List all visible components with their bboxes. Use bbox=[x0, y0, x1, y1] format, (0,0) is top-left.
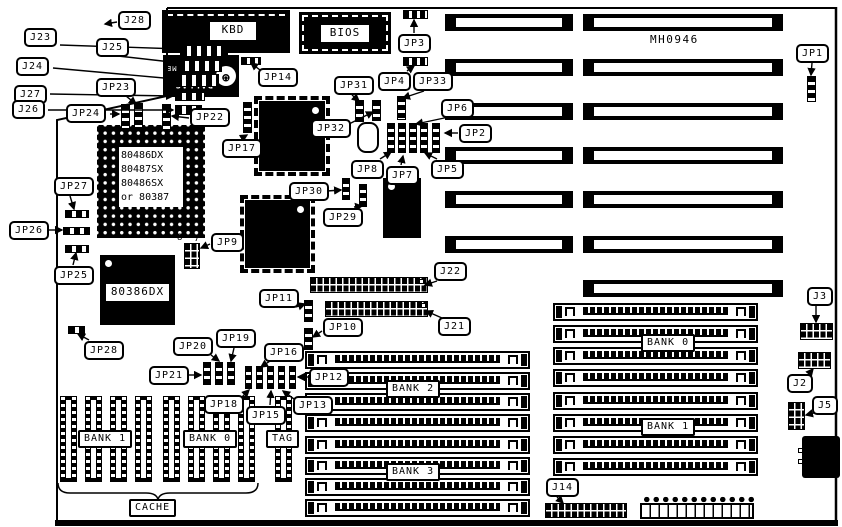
jumper-block bbox=[342, 178, 350, 200]
pin-connector bbox=[180, 45, 228, 57]
jumper-block bbox=[409, 123, 417, 153]
jumper-block bbox=[243, 102, 252, 133]
jumper-block bbox=[403, 10, 428, 19]
callout-jp19: JP19 bbox=[216, 329, 256, 348]
pin1-dot bbox=[297, 206, 304, 213]
pin-connector bbox=[65, 245, 89, 253]
leader-jp7 bbox=[401, 156, 403, 165]
pin1-dot bbox=[105, 260, 112, 267]
pin-connector bbox=[65, 210, 89, 218]
isa-slot-segment bbox=[583, 280, 783, 297]
callout-jp14: JP14 bbox=[258, 68, 298, 87]
cpu-socket-label: 80486DX80487SX80486SXor 80387 bbox=[119, 147, 183, 207]
jumper-block bbox=[278, 366, 285, 389]
cache-dip-socket bbox=[135, 396, 152, 482]
leader-jp17 bbox=[242, 135, 247, 138]
callout-j23: J23 bbox=[24, 28, 57, 47]
jumper-block bbox=[372, 100, 381, 121]
callout-j14: J14 bbox=[546, 478, 579, 497]
jumper-block bbox=[121, 104, 130, 129]
leader-j28 bbox=[105, 22, 117, 24]
isa-slot-16bit-segment bbox=[445, 59, 573, 76]
callout-jp23: JP23 bbox=[96, 78, 136, 97]
bank-label-bank-0: BANK 0 bbox=[183, 430, 237, 448]
callout-jp3: JP3 bbox=[398, 34, 431, 53]
simm-socket bbox=[305, 436, 530, 454]
cpu-socket-label-line: 80487SX bbox=[121, 163, 181, 177]
chip-label-bios: BIOS bbox=[321, 25, 369, 42]
pin1-dot bbox=[312, 107, 319, 114]
callout-jp17: JP17 bbox=[222, 139, 262, 158]
jumper-block bbox=[134, 103, 143, 128]
leader-jp33 bbox=[403, 91, 424, 98]
jumper-block bbox=[355, 100, 364, 122]
callout-jp13: JP13 bbox=[293, 396, 333, 415]
simm-socket bbox=[553, 392, 758, 410]
jumper-block bbox=[215, 362, 223, 385]
leader-jp30 bbox=[327, 190, 341, 191]
leader-jp4 bbox=[407, 66, 414, 71]
power-connector-body bbox=[640, 503, 754, 519]
leader-jp28 bbox=[78, 334, 89, 340]
pin-connector bbox=[175, 92, 205, 101]
callout-jp6: JP6 bbox=[441, 99, 474, 118]
bank-label-bank-0: BANK 0 bbox=[641, 334, 695, 352]
isa-slot-segment bbox=[583, 14, 783, 31]
bank-label-cache: CACHE bbox=[129, 499, 176, 517]
callout-jp25: JP25 bbox=[54, 266, 94, 285]
callout-jp20: JP20 bbox=[173, 337, 213, 356]
bank-label-bank-1: BANK 1 bbox=[641, 418, 695, 436]
callout-jp33: JP33 bbox=[413, 72, 453, 91]
isa-slot-segment bbox=[583, 236, 783, 253]
simm-socket bbox=[553, 458, 758, 476]
pin-number-text: 8 bbox=[177, 233, 182, 243]
simm-socket bbox=[553, 303, 758, 321]
callout-jp22: JP22 bbox=[190, 108, 230, 127]
chip-label-kbd: KBD bbox=[210, 22, 256, 40]
header-pin1-mark bbox=[419, 279, 424, 284]
simm-socket bbox=[553, 369, 758, 387]
jumper-block bbox=[304, 300, 313, 322]
isa-slot-segment bbox=[583, 147, 783, 164]
cache-brace bbox=[58, 483, 258, 500]
jumper-block bbox=[245, 366, 252, 389]
jumper-block bbox=[289, 366, 296, 389]
jumper-block bbox=[256, 366, 263, 389]
leader-jp19 bbox=[231, 348, 234, 361]
chip-label-80386dx: 80386DX bbox=[106, 284, 169, 301]
callout-jp32: JP32 bbox=[311, 119, 351, 138]
din-pin bbox=[798, 448, 803, 453]
pin-header bbox=[184, 243, 200, 269]
callout-jp24: JP24 bbox=[66, 104, 106, 123]
bank-label-tag: TAG bbox=[266, 430, 299, 448]
callout-j21: J21 bbox=[438, 317, 471, 336]
pin-connector bbox=[63, 227, 90, 235]
jumper-block bbox=[304, 328, 313, 350]
keyboard-din-connector bbox=[802, 436, 840, 478]
callout-jp16: JP16 bbox=[264, 343, 304, 362]
leader-jp1 bbox=[811, 63, 812, 75]
leader-jp9 bbox=[201, 244, 210, 248]
jumper-block bbox=[203, 362, 211, 385]
callout-jp11: JP11 bbox=[259, 289, 299, 308]
jumper-block bbox=[359, 184, 367, 207]
crystal-oscillator bbox=[357, 122, 379, 153]
leader-jp22 bbox=[172, 116, 189, 118]
jumper-block bbox=[162, 104, 171, 130]
jumper-block bbox=[807, 76, 816, 102]
cpu-socket-label-line: or 80387 bbox=[121, 191, 181, 205]
jumper-block bbox=[420, 123, 428, 153]
callout-jp28: JP28 bbox=[84, 341, 124, 360]
callout-jp30: JP30 bbox=[289, 182, 329, 201]
callout-jp10: JP10 bbox=[323, 318, 363, 337]
callout-jp31: JP31 bbox=[334, 76, 374, 95]
motherboard-jumper-diagram: MH0946 J28J23J25J24J27J26JP23JP24JP22JP1… bbox=[0, 0, 842, 527]
leader-jp15 bbox=[270, 391, 271, 405]
callout-jp7: JP7 bbox=[386, 166, 419, 185]
pin-header bbox=[788, 402, 805, 430]
leader-jp5 bbox=[425, 153, 437, 159]
power-connector-pins bbox=[640, 494, 754, 503]
callout-jp8: JP8 bbox=[351, 160, 384, 179]
callout-jp21: JP21 bbox=[149, 366, 189, 385]
din-pin bbox=[798, 459, 803, 464]
callout-j5: J5 bbox=[812, 396, 838, 415]
simm-socket bbox=[305, 414, 530, 432]
pin-header bbox=[800, 323, 833, 340]
chipset-chip-2 bbox=[245, 200, 310, 268]
isa-slot-16bit-segment bbox=[445, 14, 573, 31]
callout-jp1: JP1 bbox=[796, 44, 829, 63]
jumper-block bbox=[267, 366, 274, 389]
leader-jp27 bbox=[70, 196, 74, 209]
cpu-socket-label-line: 80486DX bbox=[121, 149, 181, 163]
callout-jp29: JP29 bbox=[323, 208, 363, 227]
pin-header bbox=[325, 301, 428, 317]
simm-socket bbox=[305, 351, 530, 369]
board-part-number: MH0946 bbox=[650, 33, 699, 46]
jumper-block bbox=[398, 123, 406, 153]
callout-jp9: JP9 bbox=[211, 233, 244, 252]
bank-label-bank-2: BANK 2 bbox=[386, 380, 440, 398]
isa-slot-16bit-segment bbox=[445, 236, 573, 253]
isa-slot-segment bbox=[583, 59, 783, 76]
isa-slot-16bit-segment bbox=[445, 147, 573, 164]
cpu-socket-label-line: 80486SX bbox=[121, 177, 181, 191]
callout-jp27: JP27 bbox=[54, 177, 94, 196]
isa-slot-segment bbox=[583, 191, 783, 208]
pin-connector bbox=[175, 74, 219, 87]
jumper-block bbox=[387, 123, 395, 153]
header-pin1-mark bbox=[421, 303, 426, 308]
callout-jp2: JP2 bbox=[459, 124, 492, 143]
callout-jp5: JP5 bbox=[431, 160, 464, 179]
leader-jp25 bbox=[73, 253, 76, 265]
callout-jp18: JP18 bbox=[204, 395, 244, 414]
jumper-block bbox=[432, 123, 440, 153]
callout-j3: J3 bbox=[807, 287, 833, 306]
pin-header bbox=[798, 352, 831, 369]
cache-dip-socket bbox=[163, 396, 180, 482]
callout-jp15: JP15 bbox=[246, 406, 286, 425]
cache-dip-socket bbox=[60, 396, 77, 482]
bank-label-bank-1: BANK 1 bbox=[78, 430, 132, 448]
simm-socket bbox=[553, 436, 758, 454]
jumper-block bbox=[227, 362, 235, 385]
bank-label-bank-3: BANK 3 bbox=[386, 463, 440, 481]
callout-j26: J26 bbox=[12, 100, 45, 119]
leader-jp10 bbox=[313, 331, 322, 337]
callout-j25: J25 bbox=[96, 38, 129, 57]
isa-slot-16bit-segment bbox=[445, 191, 573, 208]
isa-slot-segment bbox=[583, 103, 783, 120]
chip-near-jp7 bbox=[383, 178, 421, 238]
leader-jp8 bbox=[380, 152, 391, 159]
callout-j22: J22 bbox=[434, 262, 467, 281]
callout-jp12: JP12 bbox=[309, 368, 349, 387]
callout-j24: J24 bbox=[16, 57, 49, 76]
leader-jp20 bbox=[211, 355, 219, 361]
pin-number-text: 7 bbox=[194, 234, 199, 244]
callout-jp26: JP26 bbox=[9, 221, 49, 240]
pin-connector bbox=[178, 60, 222, 72]
simm-socket bbox=[305, 499, 530, 517]
jumper-block bbox=[397, 96, 406, 120]
jumper-block bbox=[241, 57, 261, 65]
pin-header bbox=[545, 503, 627, 518]
jumper-block bbox=[403, 57, 428, 66]
pin-connector bbox=[68, 326, 85, 334]
callout-jp4: JP4 bbox=[378, 72, 411, 91]
callout-j28: J28 bbox=[118, 11, 151, 30]
callout-j2: J2 bbox=[787, 374, 813, 393]
chip-notch-line bbox=[167, 14, 285, 16]
pin-header bbox=[310, 277, 428, 293]
